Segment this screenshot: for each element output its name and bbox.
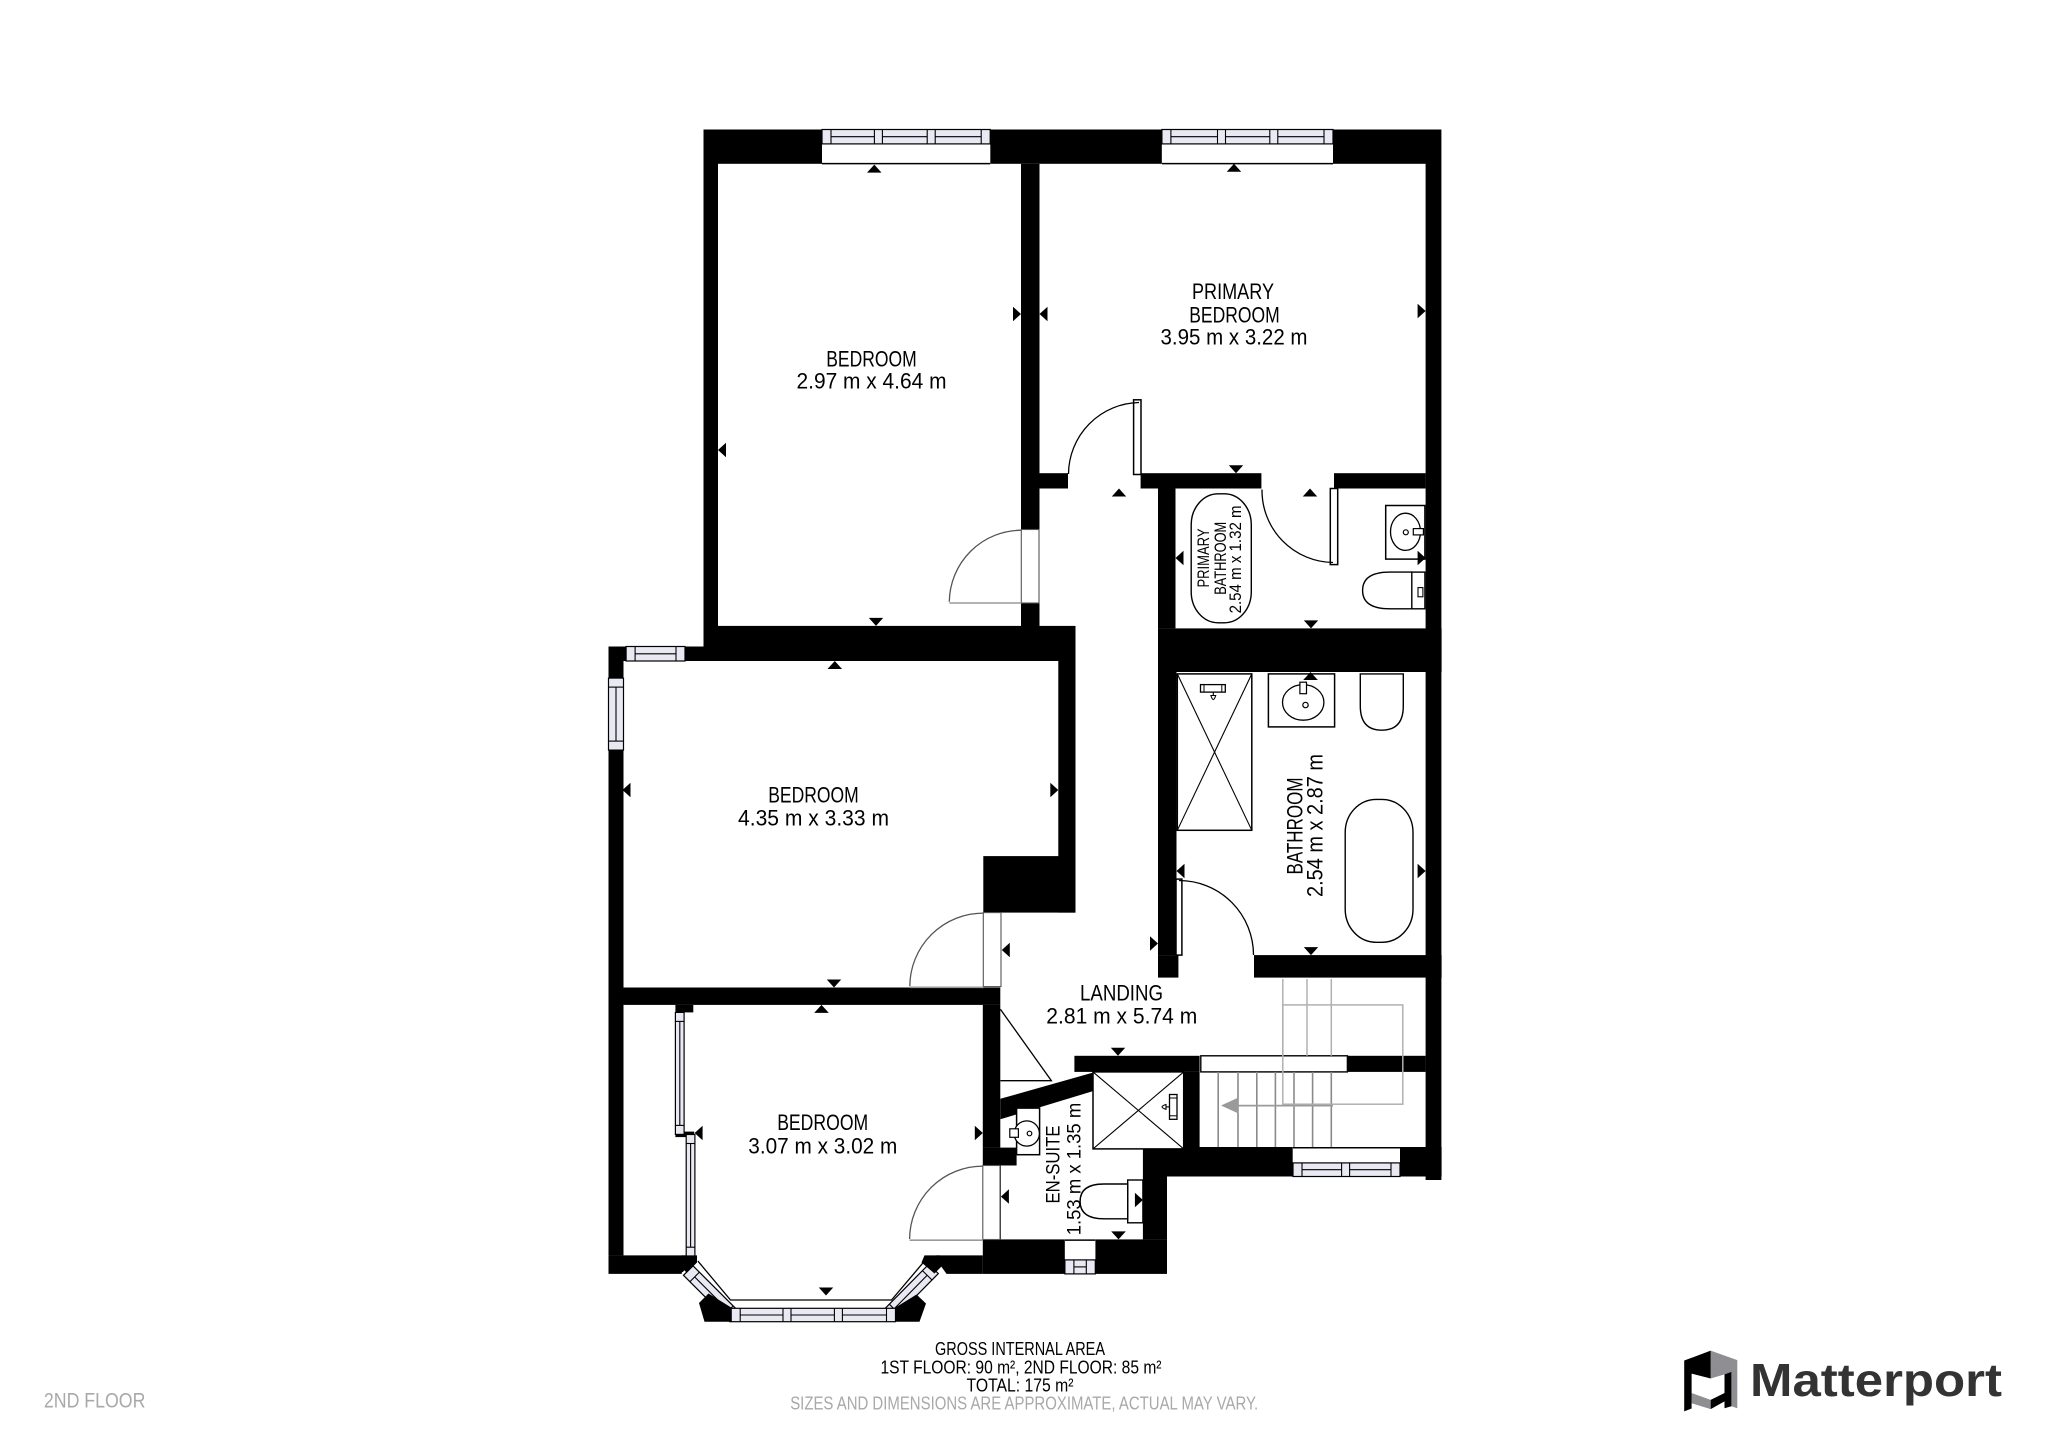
svg-text:EN-SUITE: EN-SUITE [1043,1126,1065,1204]
svg-text:BEDROOM: BEDROOM [777,1110,868,1135]
svg-text:Matterport: Matterport [1750,1354,2002,1406]
svg-text:SIZES AND DIMENSIONS ARE APPRO: SIZES AND DIMENSIONS ARE APPROXIMATE, AC… [790,1393,1258,1414]
svg-text:3.95 m x 3.22 m: 3.95 m x 3.22 m [1161,325,1308,350]
svg-text:2.97 m x 4.64 m: 2.97 m x 4.64 m [797,369,947,394]
svg-text:2ND FLOOR: 2ND FLOOR [44,1389,145,1412]
svg-text:4.35 m x 3.33 m: 4.35 m x 3.33 m [738,806,889,831]
svg-text:2.54 m x 2.87 m: 2.54 m x 2.87 m [1302,754,1327,897]
svg-text:3.07 m x 3.02 m: 3.07 m x 3.02 m [748,1133,897,1158]
svg-text:PRIMARY: PRIMARY [1192,279,1274,304]
svg-text:PRIMARY: PRIMARY [1195,528,1213,587]
svg-text:2.81 m x 5.74 m: 2.81 m x 5.74 m [1046,1003,1197,1028]
svg-text:2.54 m x 1.32 m: 2.54 m x 1.32 m [1227,505,1245,613]
svg-text:LANDING: LANDING [1080,981,1163,1006]
svg-text:BEDROOM: BEDROOM [768,783,859,808]
svg-text:1.53 m x 1.35 m: 1.53 m x 1.35 m [1064,1103,1086,1236]
